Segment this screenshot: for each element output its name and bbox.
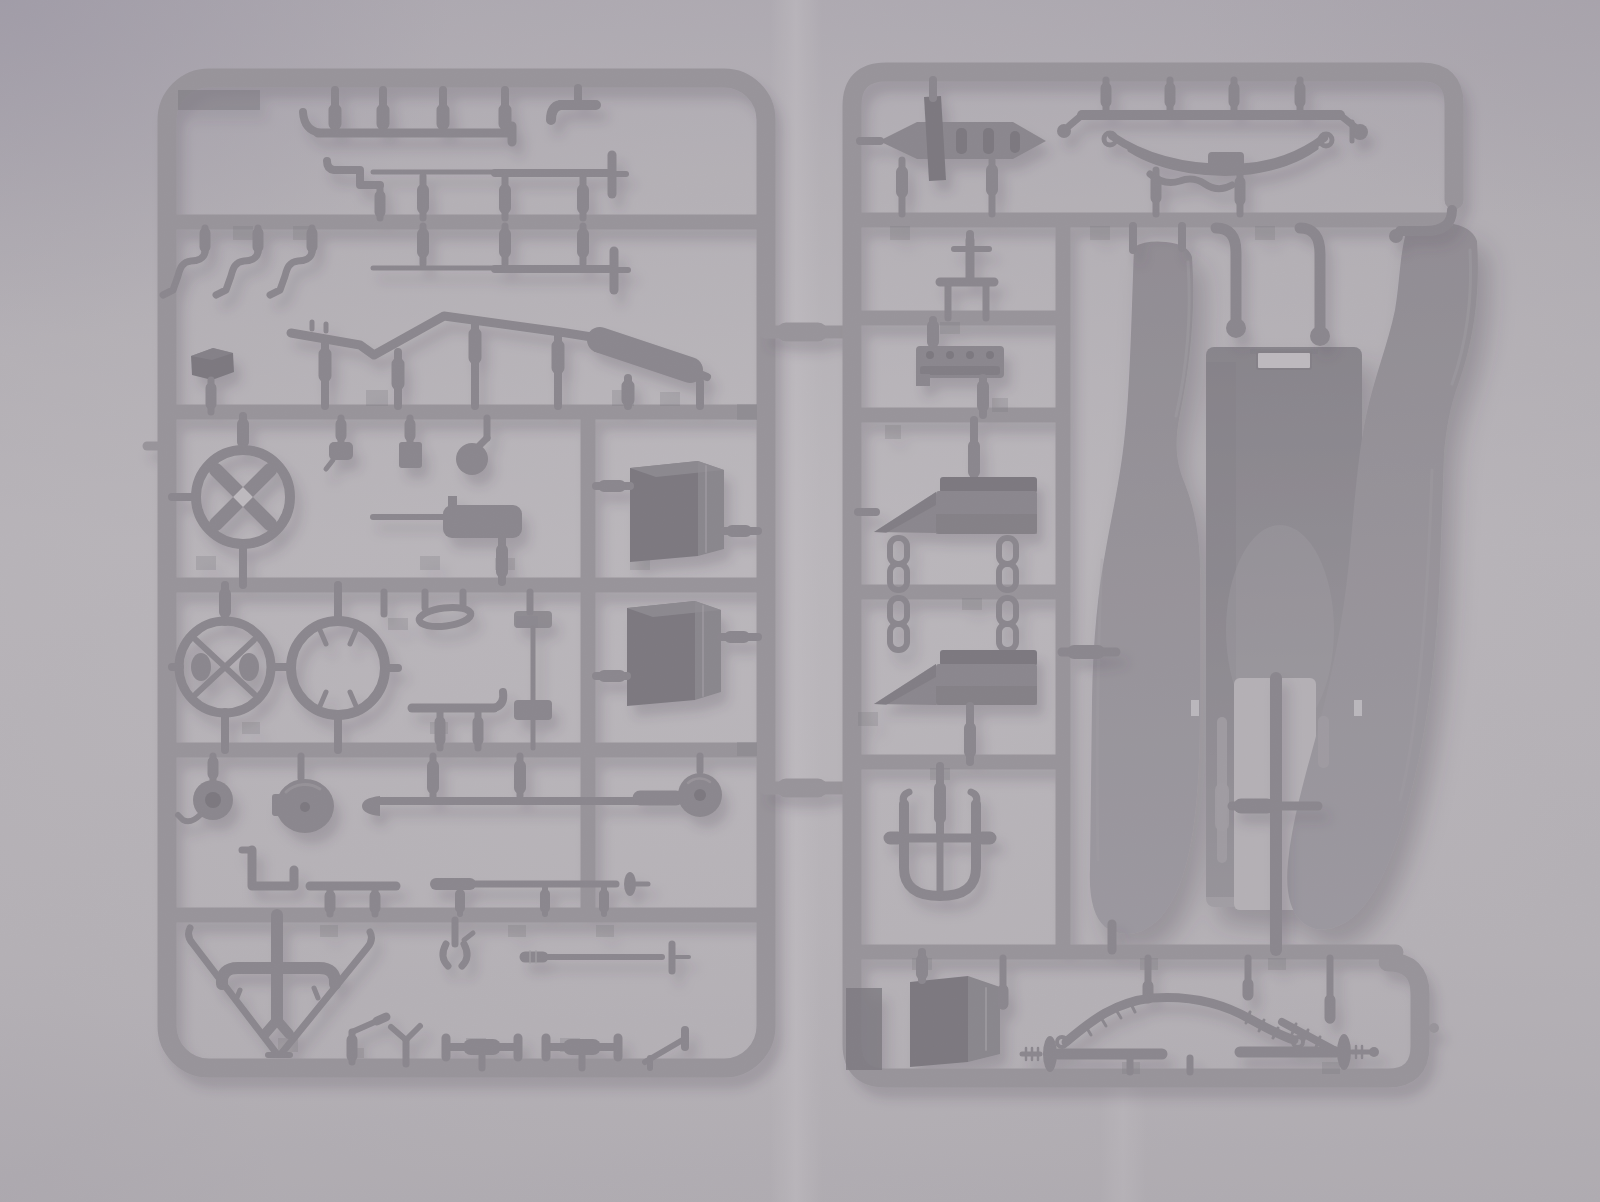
fold-crease-vertical xyxy=(770,0,822,1202)
sprue-photo-canvas xyxy=(0,0,1600,1202)
photo-model-kit-sprues xyxy=(0,0,1600,1202)
corner-gusset xyxy=(178,90,260,110)
panel-slot xyxy=(1257,352,1311,369)
bulb-horn xyxy=(456,443,488,475)
